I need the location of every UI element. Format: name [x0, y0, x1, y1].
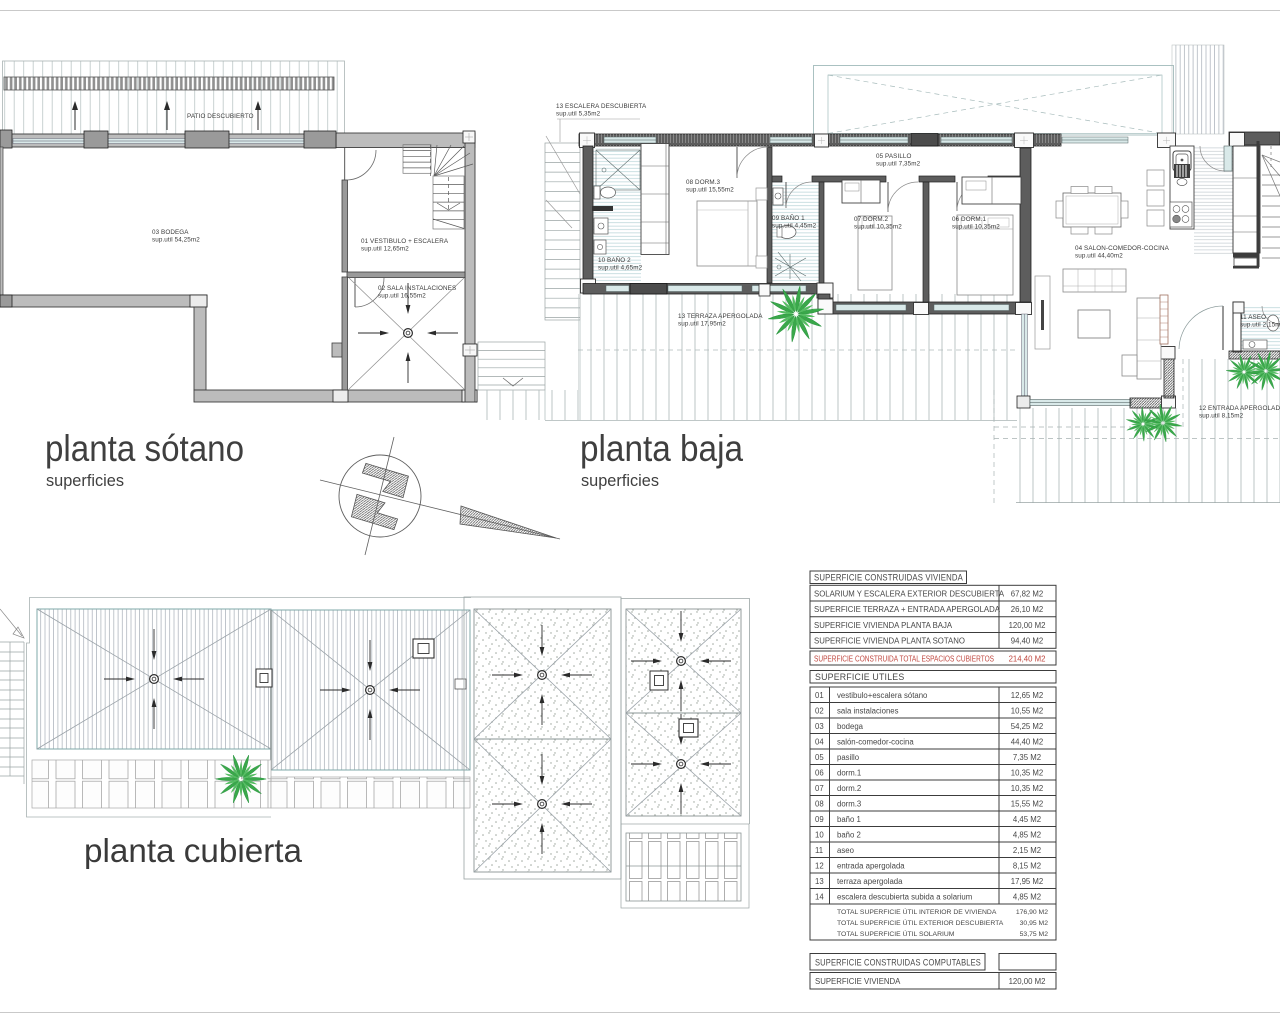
svg-text:54,25 M2: 54,25 M2: [1011, 722, 1044, 731]
svg-text:sup.util 15,55m2: sup.util 15,55m2: [686, 187, 734, 194]
svg-text:12 ENTRADA APERGOLADA: 12 ENTRADA APERGOLADA: [1199, 405, 1280, 412]
svg-text:10: 10: [815, 830, 824, 839]
svg-text:30,95 M2: 30,95 M2: [1020, 920, 1049, 927]
svg-text:sup.util 12,65m2: sup.util 12,65m2: [361, 246, 409, 253]
svg-text:superficies: superficies: [46, 471, 124, 490]
svg-text:09 BAÑO 1: 09 BAÑO 1: [772, 213, 805, 222]
svg-text:pasillo: pasillo: [837, 753, 860, 762]
svg-text:26,10 M2: 26,10 M2: [1011, 605, 1044, 614]
svg-text:44,40 M2: 44,40 M2: [1011, 737, 1044, 746]
svg-text:09: 09: [815, 815, 824, 824]
svg-text:14: 14: [815, 892, 824, 901]
svg-text:03: 03: [815, 722, 824, 731]
svg-text:03 BODEGA: 03 BODEGA: [152, 229, 189, 236]
svg-text:01 VESTIBULO + ESCALERA: 01 VESTIBULO + ESCALERA: [361, 238, 449, 245]
svg-text:4,45 M2: 4,45 M2: [1013, 815, 1041, 824]
svg-text:04 SALON-COMEDOR-COCINA: 04 SALON-COMEDOR-COCINA: [1075, 245, 1170, 252]
svg-text:01: 01: [815, 691, 824, 700]
svg-text:terraza apergolada: terraza apergolada: [837, 877, 903, 886]
svg-text:214,40 M2: 214,40 M2: [1009, 655, 1046, 664]
svg-text:10,55 M2: 10,55 M2: [1011, 706, 1044, 715]
svg-text:8,15 M2: 8,15 M2: [1013, 861, 1041, 870]
svg-text:06: 06: [815, 768, 824, 777]
svg-text:13 TERRAZA APERGOLADA: 13 TERRAZA APERGOLADA: [678, 313, 763, 320]
svg-text:bodega: bodega: [837, 722, 864, 731]
svg-text:10,35 M2: 10,35 M2: [1011, 768, 1044, 777]
svg-text:13: 13: [815, 877, 824, 886]
svg-text:53,75 M2: 53,75 M2: [1020, 931, 1049, 938]
svg-text:94,40 M2: 94,40 M2: [1011, 637, 1044, 646]
svg-text:12: 12: [815, 861, 824, 870]
svg-text:superficies: superficies: [581, 471, 659, 490]
svg-text:SUPERFICIE UTILES: SUPERFICIE UTILES: [815, 672, 904, 682]
svg-text:120,00 M2: 120,00 M2: [1009, 977, 1046, 986]
svg-text:dorm.1: dorm.1: [837, 768, 861, 777]
svg-text:7,35 M2: 7,35 M2: [1013, 753, 1041, 762]
svg-text:12,65 M2: 12,65 M2: [1011, 691, 1044, 700]
svg-text:SUPERFICIE VIVIENDA PLANTA SOT: SUPERFICIE VIVIENDA PLANTA SOTANO: [814, 637, 965, 646]
svg-text:15,55 M2: 15,55 M2: [1011, 799, 1044, 808]
svg-text:02: 02: [815, 706, 824, 715]
svg-text:SOLARIUM Y ESCALERA EXTERIOR D: SOLARIUM Y ESCALERA EXTERIOR DESCUBIERTA: [814, 589, 1005, 598]
svg-text:06 DORM.1: 06 DORM.1: [952, 216, 987, 223]
svg-text:sup.util 10,35m2: sup.util 10,35m2: [952, 224, 1000, 231]
svg-text:TOTAL SUPERFICIE ÚTIL SOLARIUM: TOTAL SUPERFICIE ÚTIL SOLARIUM: [837, 929, 955, 938]
svg-text:sup.util 8,15m2: sup.util 8,15m2: [1199, 413, 1244, 420]
svg-text:sup.util 4,45m2: sup.util 4,45m2: [772, 223, 817, 230]
svg-text:10 BAÑO 2: 10 BAÑO 2: [598, 255, 631, 264]
svg-text:120,00 M2: 120,00 M2: [1009, 621, 1046, 630]
svg-text:SUPERFICIE VIVIENDA PLANTA BAJ: SUPERFICIE VIVIENDA PLANTA BAJA: [814, 621, 953, 630]
svg-text:17,95 M2: 17,95 M2: [1011, 877, 1044, 886]
svg-text:escalera descubierta subida a: escalera descubierta subida a solarium: [837, 892, 972, 901]
svg-text:SUPERFICIE CONSTRUIDA TOTAL ES: SUPERFICIE CONSTRUIDA TOTAL ESPACIOS CUB…: [814, 655, 994, 664]
svg-text:salón-comedor-cocina: salón-comedor-cocina: [837, 737, 914, 746]
svg-text:SUPERFICIE CONSTRUIDAS VIVIEND: SUPERFICIE CONSTRUIDAS VIVIENDA: [814, 573, 963, 583]
svg-text:sup.util 54,25m2: sup.util 54,25m2: [152, 237, 200, 244]
svg-text:2,15 M2: 2,15 M2: [1013, 846, 1041, 855]
svg-text:13 ESCALERA DESCUBIERTA: 13 ESCALERA DESCUBIERTA: [556, 103, 647, 110]
svg-text:04: 04: [815, 737, 824, 746]
svg-text:67,82 M2: 67,82 M2: [1011, 589, 1044, 598]
svg-text:4,85 M2: 4,85 M2: [1013, 892, 1041, 901]
svg-text:baño 1: baño 1: [837, 815, 861, 824]
svg-text:sup.util 7,35m2: sup.util 7,35m2: [876, 161, 921, 168]
svg-text:aseo: aseo: [837, 846, 855, 855]
svg-text:sup.util 44,40m2: sup.util 44,40m2: [1075, 253, 1123, 260]
svg-text:planta cubierta: planta cubierta: [84, 832, 303, 869]
svg-text:planta baja: planta baja: [580, 428, 743, 469]
svg-text:07 DORM.2: 07 DORM.2: [854, 216, 889, 223]
svg-text:SUPERFICIE CONSTRUIDAS COMPUTA: SUPERFICIE CONSTRUIDAS COMPUTABLES: [815, 958, 981, 968]
svg-text:sup.util 5,35m2: sup.util 5,35m2: [556, 111, 601, 118]
svg-text:176,90 M2: 176,90 M2: [1016, 909, 1048, 916]
svg-text:planta sótano: planta sótano: [45, 428, 244, 469]
svg-text:sala instalaciones: sala instalaciones: [837, 706, 899, 715]
svg-text:baño 2: baño 2: [837, 830, 861, 839]
svg-text:05 PASILLO: 05 PASILLO: [876, 153, 912, 160]
svg-text:entrada apergolada: entrada apergolada: [837, 861, 905, 870]
svg-text:PATIO DESCUBIERTO: PATIO DESCUBIERTO: [187, 113, 254, 120]
svg-text:sup.util 4,65m2: sup.util 4,65m2: [598, 265, 643, 272]
svg-text:sup.util 16,55m2: sup.util 16,55m2: [378, 293, 426, 300]
svg-text:TOTAL SUPERFICIE ÚTIL EXTERIOR: TOTAL SUPERFICIE ÚTIL EXTERIOR DESCUBIER…: [837, 918, 1004, 927]
svg-text:10,35 M2: 10,35 M2: [1011, 784, 1044, 793]
svg-text:08 DORM.3: 08 DORM.3: [686, 179, 721, 186]
svg-text:07: 07: [815, 784, 824, 793]
svg-text:11: 11: [815, 846, 823, 855]
svg-text:11 ASEO: 11 ASEO: [1240, 314, 1266, 321]
svg-text:SUPERFICIE VIVIENDA: SUPERFICIE VIVIENDA: [815, 977, 901, 986]
svg-text:sup.util 10,35m2: sup.util 10,35m2: [854, 224, 902, 231]
svg-text:sup.util 2,15m2: sup.util 2,15m2: [1240, 322, 1280, 329]
svg-text:08: 08: [815, 799, 824, 808]
svg-text:05: 05: [815, 753, 824, 762]
svg-text:4,85 M2: 4,85 M2: [1013, 830, 1041, 839]
svg-text:dorm.3: dorm.3: [837, 799, 861, 808]
svg-text:dorm.2: dorm.2: [837, 784, 861, 793]
svg-text:SUPERFICIE TERRAZA + ENTRADA A: SUPERFICIE TERRAZA + ENTRADA APERGOLADA: [814, 605, 1001, 614]
svg-text:sup.util 17,95m2: sup.util 17,95m2: [678, 321, 726, 328]
svg-text:02 SALA INSTALACIONES: 02 SALA INSTALACIONES: [378, 285, 456, 292]
svg-text:TOTAL SUPERFICIE ÚTIL INTERIOR: TOTAL SUPERFICIE ÚTIL INTERIOR DE VIVIEN…: [837, 907, 997, 916]
svg-text:vestibulo+escalera sótano: vestibulo+escalera sótano: [837, 691, 928, 700]
